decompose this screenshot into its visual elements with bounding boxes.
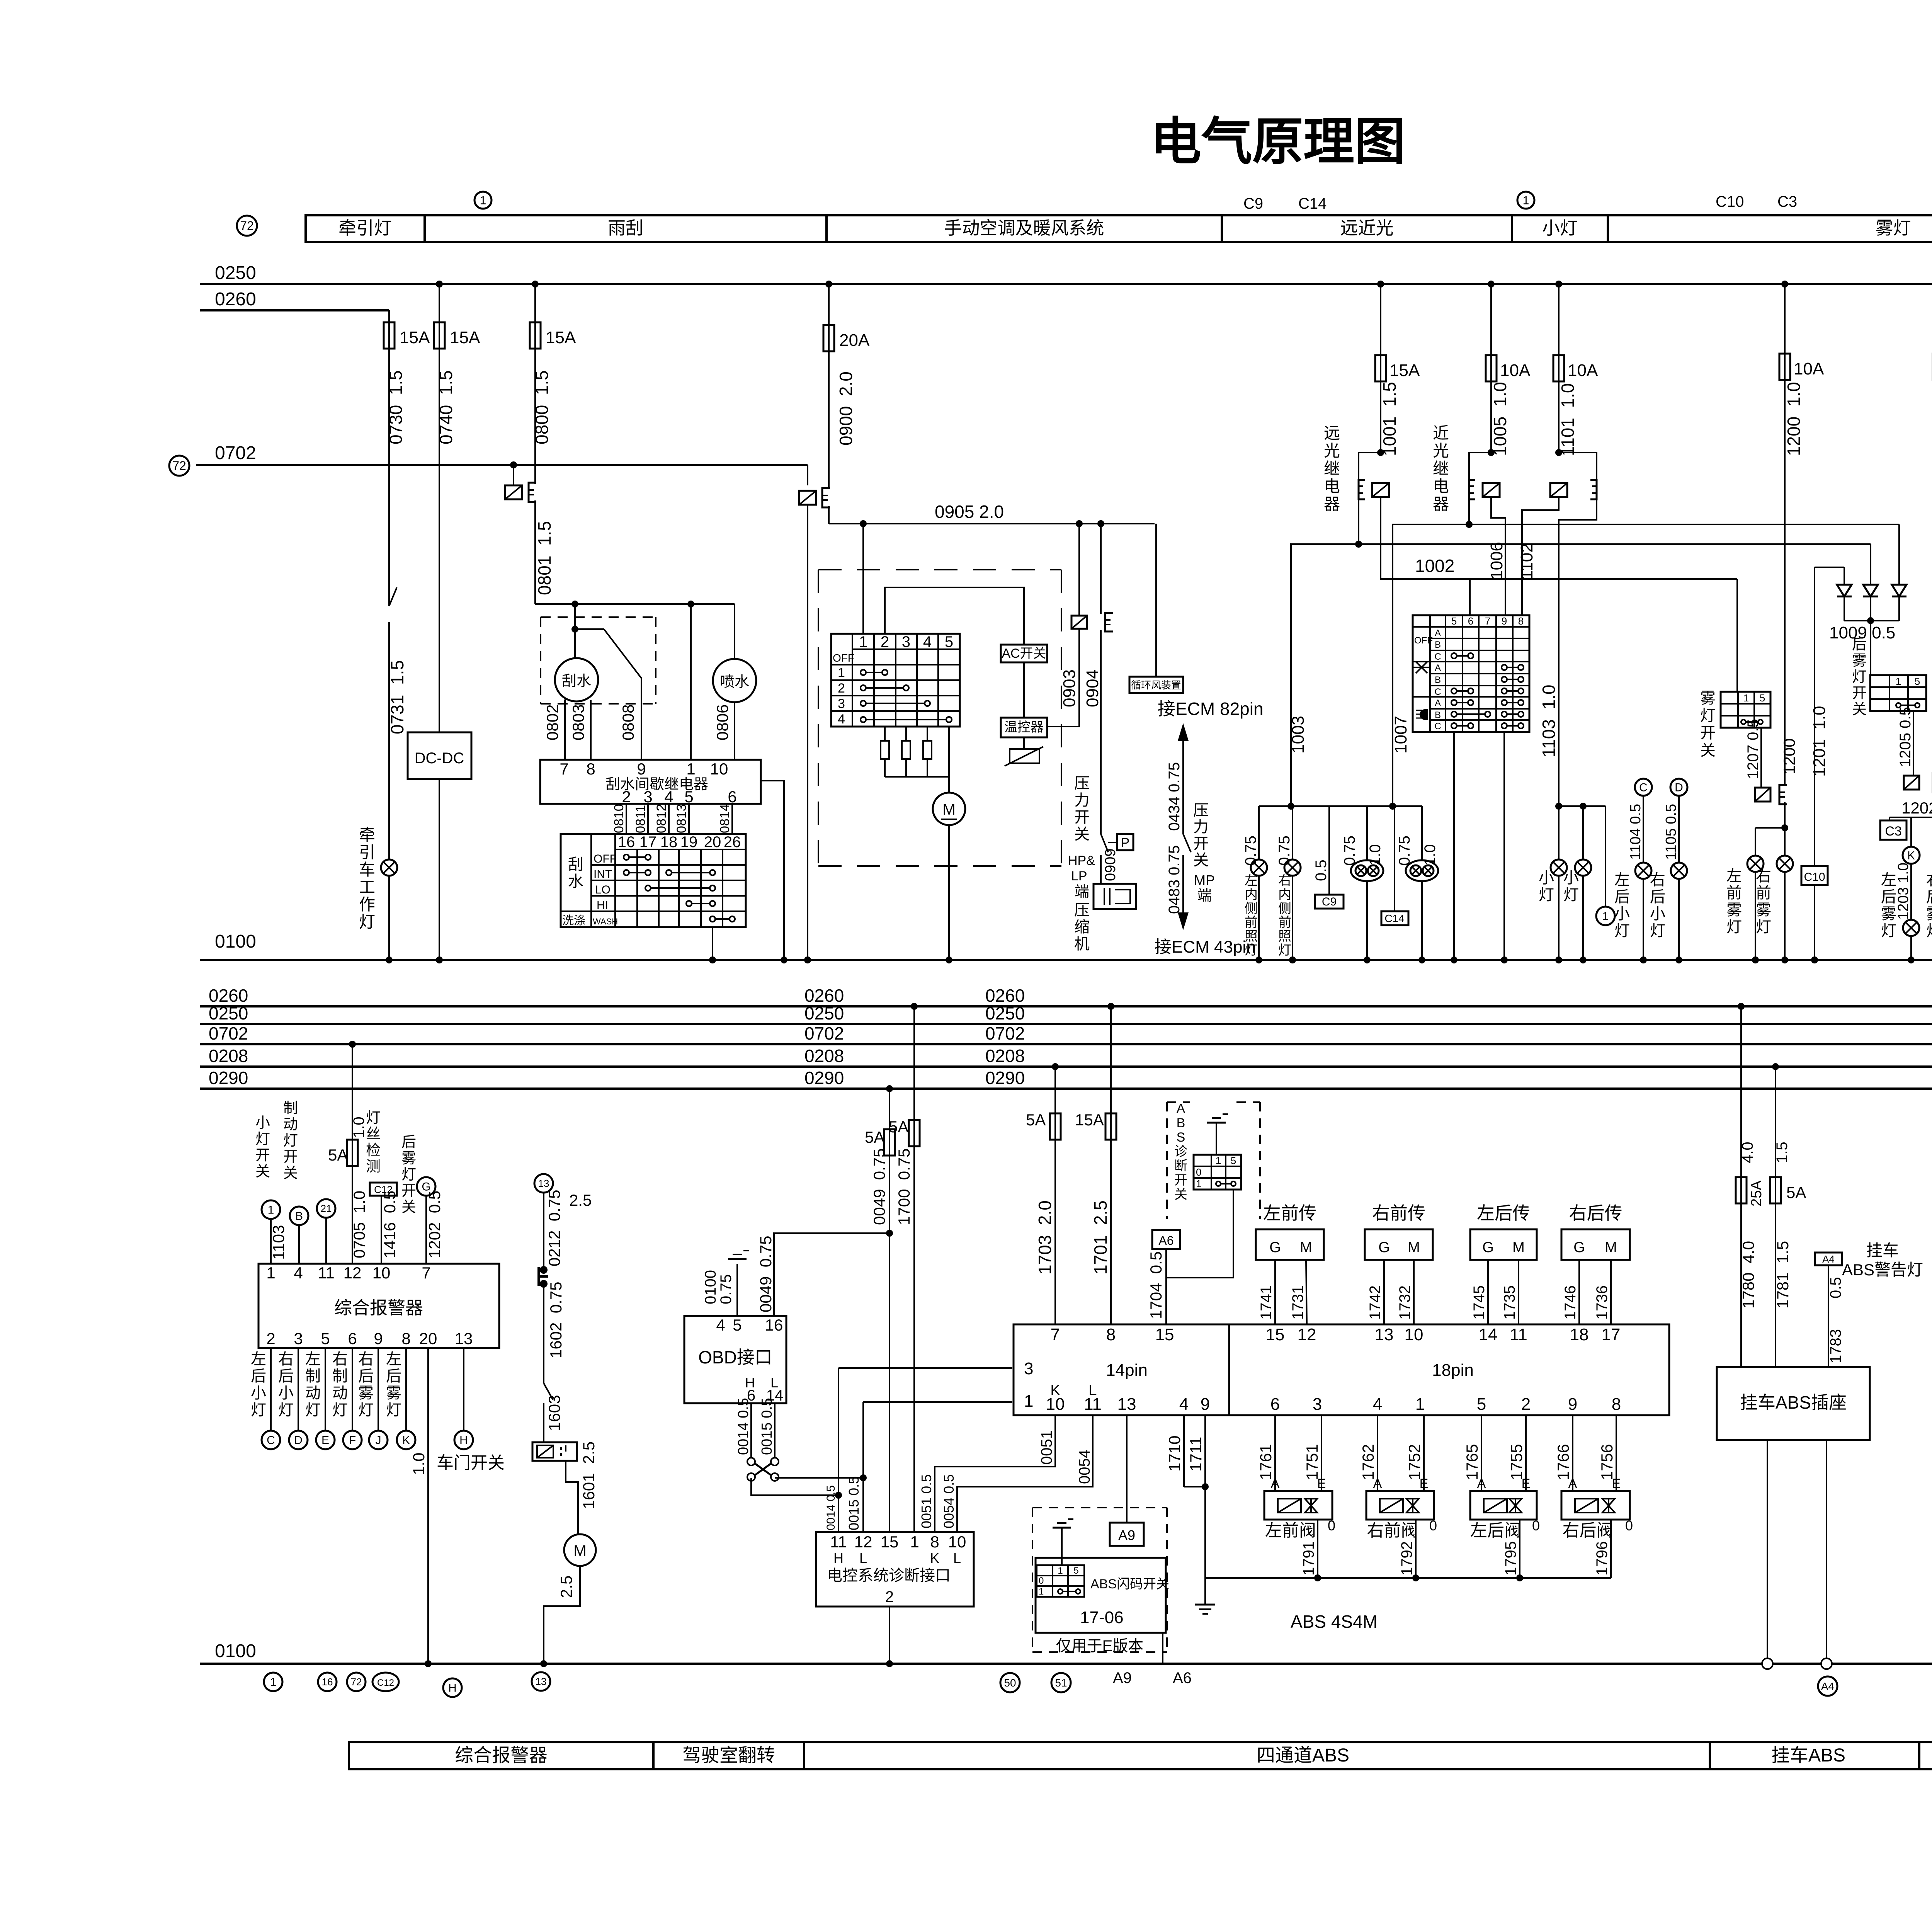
svg-text:1752: 1752	[1405, 1444, 1423, 1480]
svg-text:后雾灯开关: 后雾灯开关	[401, 1134, 416, 1215]
svg-text:C10: C10	[1716, 193, 1744, 210]
svg-text:1791: 1791	[1300, 1541, 1317, 1576]
svg-text:7: 7	[1051, 1325, 1060, 1344]
svg-text:11: 11	[1084, 1395, 1102, 1414]
svg-text:20: 20	[419, 1329, 437, 1348]
svg-text:20: 20	[704, 834, 721, 851]
svg-text:牵引灯: 牵引灯	[338, 218, 392, 238]
svg-text:C: C	[1639, 781, 1648, 794]
svg-text:左后小灯: 左后小灯	[1614, 871, 1630, 939]
svg-text:MP: MP	[1194, 872, 1215, 888]
svg-text:1704 0.5: 1704 0.5	[1147, 1251, 1165, 1319]
svg-text:13: 13	[1117, 1395, 1136, 1414]
svg-text:H: H	[459, 1434, 468, 1447]
svg-text:洗涤: 洗涤	[562, 914, 585, 927]
svg-text:1002: 1002	[1415, 556, 1454, 576]
svg-text:D: D	[1675, 781, 1683, 794]
svg-text:B: B	[1435, 675, 1441, 685]
svg-text:接ECM 43pin: 接ECM 43pin	[1155, 938, 1256, 956]
svg-text:1700 0.75: 1700 0.75	[895, 1148, 913, 1225]
svg-text:8: 8	[586, 760, 595, 778]
svg-text:0810: 0810	[612, 804, 626, 833]
svg-text:A4: A4	[1821, 1680, 1834, 1692]
svg-text:20A: 20A	[839, 331, 870, 350]
svg-text:A: A	[1435, 663, 1441, 673]
svg-text:1101 1.0: 1101 1.0	[1558, 383, 1578, 456]
svg-text:右后传: 右后传	[1569, 1203, 1622, 1223]
svg-text:OFF: OFF	[833, 652, 854, 664]
svg-text:C9: C9	[1322, 895, 1337, 908]
svg-text:0250: 0250	[804, 1003, 844, 1023]
svg-text:1602 0.75: 1602 0.75	[547, 1282, 565, 1358]
svg-text:M: M	[1605, 1239, 1617, 1256]
svg-text:3: 3	[1313, 1395, 1322, 1414]
svg-text:4: 4	[664, 788, 673, 806]
svg-text:1792: 1792	[1398, 1541, 1415, 1576]
svg-text:0208: 0208	[209, 1046, 248, 1066]
svg-text:1103: 1103	[269, 1225, 287, 1260]
svg-text:C: C	[267, 1434, 275, 1447]
svg-text:9: 9	[1201, 1395, 1210, 1414]
svg-text:四通道ABS: 四通道ABS	[1257, 1745, 1349, 1766]
svg-text:M: M	[942, 801, 955, 818]
svg-text:1: 1	[268, 1204, 274, 1217]
svg-text:16: 16	[765, 1316, 783, 1334]
svg-text:1: 1	[1743, 692, 1749, 704]
svg-text:3: 3	[1024, 1359, 1033, 1378]
svg-text:4: 4	[716, 1316, 725, 1334]
svg-text:19: 19	[680, 834, 698, 851]
svg-text:25A: 25A	[1748, 1180, 1765, 1207]
svg-text:6: 6	[1270, 1395, 1280, 1414]
svg-text:驾驶室翻转: 驾驶室翻转	[682, 1745, 775, 1766]
svg-text:E: E	[1317, 1476, 1326, 1491]
svg-text:端: 端	[1197, 888, 1212, 904]
svg-text:1001 1.5: 1001 1.5	[1379, 382, 1400, 456]
svg-text:小灯: 小灯	[1563, 870, 1579, 904]
svg-text:1416 0.5: 1416 0.5	[381, 1191, 399, 1258]
svg-text:72: 72	[351, 1676, 362, 1688]
svg-text:15: 15	[881, 1533, 899, 1551]
svg-text:手动空调及暖风系统: 手动空调及暖风系统	[944, 218, 1104, 238]
svg-text:5A: 5A	[1786, 1183, 1806, 1202]
svg-text:10A: 10A	[1794, 359, 1824, 378]
svg-text:11: 11	[318, 1264, 335, 1282]
svg-text:1: 1	[838, 665, 845, 680]
svg-text:AC开关: AC开关	[1002, 646, 1046, 661]
svg-text:3: 3	[294, 1329, 303, 1348]
svg-text:LP: LP	[1071, 869, 1087, 883]
svg-text:0.5: 0.5	[1827, 1277, 1844, 1299]
svg-text:8: 8	[1518, 615, 1524, 627]
svg-text:5: 5	[684, 788, 693, 806]
svg-text:0905 2.0: 0905 2.0	[935, 502, 1004, 522]
svg-text:OFF: OFF	[594, 853, 617, 865]
svg-text:1: 1	[1602, 910, 1609, 923]
svg-text:C: C	[1434, 652, 1441, 662]
svg-text:51: 51	[1055, 1677, 1067, 1689]
svg-text:2: 2	[881, 633, 889, 650]
svg-text:1: 1	[1216, 1155, 1221, 1166]
svg-text:A: A	[1435, 698, 1441, 708]
svg-text:0212 0.75: 0212 0.75	[545, 1190, 563, 1266]
svg-text:右内侧前照灯: 右内侧前照灯	[1278, 873, 1291, 958]
svg-text:18: 18	[1570, 1325, 1589, 1344]
svg-text:G: G	[1573, 1239, 1585, 1256]
svg-text:4: 4	[838, 712, 845, 727]
svg-text:0813: 0813	[674, 804, 689, 833]
svg-text:ABS警告灯: ABS警告灯	[1842, 1261, 1923, 1279]
svg-text:3: 3	[902, 633, 910, 650]
svg-text:1751: 1751	[1303, 1444, 1321, 1480]
svg-text:0803: 0803	[569, 705, 587, 740]
svg-text:1102: 1102	[1517, 543, 1536, 580]
svg-text:2: 2	[885, 1588, 894, 1605]
svg-text:1202 0.5: 1202 0.5	[425, 1191, 444, 1258]
svg-text:0100: 0100	[702, 1270, 719, 1304]
svg-text:6: 6	[728, 788, 736, 806]
svg-text:2: 2	[1521, 1395, 1531, 1414]
svg-text:0900 2.0: 0900 2.0	[836, 371, 856, 446]
svg-text:4: 4	[294, 1264, 303, 1282]
svg-text:0702: 0702	[215, 443, 256, 463]
svg-text:11: 11	[830, 1533, 847, 1551]
svg-text:13: 13	[1375, 1325, 1394, 1344]
svg-text:1796: 1796	[1594, 1541, 1611, 1576]
svg-text:0049 0.75: 0049 0.75	[870, 1148, 888, 1225]
svg-text:5: 5	[1760, 692, 1765, 704]
svg-text:1710: 1710	[1165, 1436, 1184, 1472]
svg-text:E: E	[1612, 1476, 1621, 1491]
svg-text:近光继电器: 近光继电器	[1433, 424, 1449, 513]
svg-text:左后雾灯: 左后雾灯	[386, 1351, 401, 1419]
svg-text:0483 0.75: 0483 0.75	[1166, 845, 1183, 914]
svg-text:1.0: 1.0	[350, 1116, 367, 1138]
svg-text:0.75: 0.75	[1396, 836, 1413, 866]
svg-text:温控器: 温控器	[1004, 720, 1044, 735]
svg-text:L: L	[953, 1550, 961, 1566]
svg-text:A: A	[1373, 1476, 1382, 1491]
svg-text:左前阀: 左前阀	[1265, 1521, 1316, 1540]
svg-text:8: 8	[930, 1533, 939, 1551]
svg-text:J: J	[376, 1434, 381, 1447]
svg-text:50: 50	[1004, 1677, 1016, 1689]
svg-text:5A: 5A	[889, 1118, 908, 1136]
svg-text:0705 1.0: 0705 1.0	[350, 1191, 368, 1258]
svg-text:5: 5	[1915, 676, 1920, 687]
svg-text:左前雾灯: 左前雾灯	[1726, 868, 1742, 936]
svg-text:0014 0.5: 0014 0.5	[735, 1398, 752, 1455]
svg-text:1755: 1755	[1507, 1444, 1526, 1480]
svg-text:1703 2.0: 1703 2.0	[1035, 1200, 1055, 1275]
svg-text:1.0: 1.0	[1367, 844, 1384, 866]
svg-text:5: 5	[1477, 1395, 1486, 1414]
svg-text:15A: 15A	[450, 328, 480, 347]
svg-text:0802: 0802	[543, 705, 561, 740]
svg-text:8: 8	[1612, 1395, 1621, 1414]
svg-text:3: 3	[643, 788, 652, 806]
svg-text:0702: 0702	[804, 1023, 844, 1043]
svg-text:0806: 0806	[713, 705, 731, 740]
svg-text:左后小灯: 左后小灯	[251, 1351, 266, 1419]
svg-text:综合报警器: 综合报警器	[455, 1745, 548, 1766]
svg-text:循环风装置: 循环风装置	[1131, 679, 1181, 691]
svg-text:1.0: 1.0	[410, 1453, 428, 1475]
svg-text:OFF: OFF	[1414, 635, 1433, 646]
svg-text:M: M	[1512, 1239, 1525, 1256]
svg-text:K: K	[402, 1434, 410, 1447]
svg-text:72: 72	[172, 459, 186, 473]
svg-text:0290: 0290	[804, 1068, 844, 1088]
svg-text:21: 21	[321, 1203, 332, 1214]
svg-text:1006: 1006	[1487, 542, 1506, 580]
svg-text:M: M	[1300, 1239, 1312, 1256]
svg-text:C14: C14	[1384, 912, 1404, 924]
svg-text:1: 1	[480, 194, 486, 207]
svg-text:2: 2	[622, 788, 631, 806]
svg-text:1: 1	[686, 760, 695, 778]
svg-text:0015 0.5: 0015 0.5	[759, 1398, 775, 1455]
svg-text:1.5: 1.5	[1774, 1142, 1791, 1163]
svg-text:2.5: 2.5	[557, 1576, 575, 1598]
svg-text:1795: 1795	[1502, 1541, 1519, 1576]
svg-text:0250: 0250	[215, 263, 256, 283]
svg-text:INT: INT	[594, 868, 612, 881]
svg-text:1746: 1746	[1562, 1285, 1579, 1320]
svg-text:8: 8	[401, 1329, 410, 1348]
svg-text:0702: 0702	[209, 1023, 248, 1043]
svg-text:M: M	[1408, 1239, 1420, 1256]
svg-text:1: 1	[859, 633, 867, 650]
svg-text:13: 13	[536, 1676, 547, 1687]
svg-text:4: 4	[1179, 1395, 1189, 1414]
svg-text:右后雾灯: 右后雾灯	[1926, 871, 1932, 939]
svg-text:5A: 5A	[328, 1146, 348, 1164]
svg-text:C3: C3	[1885, 824, 1901, 839]
svg-text:13: 13	[455, 1329, 473, 1348]
svg-text:0.75: 0.75	[1242, 836, 1259, 866]
svg-text:1: 1	[270, 1676, 277, 1689]
svg-text:A: A	[1271, 1476, 1280, 1491]
svg-text:0: 0	[1328, 1518, 1335, 1533]
svg-text:F: F	[349, 1434, 356, 1447]
svg-text:0208: 0208	[804, 1046, 844, 1066]
svg-text:WASH: WASH	[593, 917, 618, 926]
svg-text:0015 0.5: 0015 0.5	[846, 1476, 862, 1530]
svg-text:6: 6	[348, 1329, 357, 1348]
svg-text:仅用于E版本: 仅用于E版本	[1056, 1637, 1144, 1654]
svg-text:14pin: 14pin	[1106, 1361, 1148, 1380]
svg-text:车门开关: 车门开关	[437, 1453, 505, 1472]
svg-text:17-06: 17-06	[1080, 1608, 1124, 1627]
svg-text:0812: 0812	[654, 804, 669, 833]
svg-text:K: K	[930, 1550, 939, 1566]
svg-text:10: 10	[1405, 1325, 1423, 1344]
svg-text:挂车: 挂车	[1866, 1241, 1899, 1259]
svg-text:10: 10	[710, 760, 728, 778]
svg-text:1766: 1766	[1554, 1444, 1572, 1480]
svg-text:0814: 0814	[718, 804, 732, 833]
svg-text:8: 8	[1106, 1325, 1116, 1344]
svg-text:1731: 1731	[1289, 1285, 1306, 1320]
svg-text:10A: 10A	[1568, 361, 1598, 380]
svg-text:雾灯开关: 雾灯开关	[1700, 690, 1716, 759]
svg-text:牵引车工作灯: 牵引车工作灯	[359, 826, 375, 931]
svg-text:0: 0	[1196, 1166, 1201, 1178]
svg-text:右前传: 右前传	[1372, 1203, 1425, 1223]
svg-text:17: 17	[639, 834, 657, 851]
svg-text:6: 6	[1468, 615, 1473, 627]
svg-text:1003: 1003	[1289, 716, 1308, 754]
svg-text:0: 0	[1429, 1518, 1437, 1533]
svg-text:0903: 0903	[1060, 669, 1079, 707]
svg-text:2: 2	[266, 1329, 275, 1348]
svg-text:雾灯: 雾灯	[1876, 218, 1911, 238]
svg-text:右后阀: 右后阀	[1563, 1521, 1614, 1540]
svg-text:1761: 1761	[1257, 1444, 1275, 1480]
svg-text:0731 1.5: 0731 1.5	[387, 660, 407, 734]
svg-text:1711: 1711	[1187, 1437, 1205, 1472]
svg-text:0909: 0909	[1102, 848, 1119, 881]
svg-text:1007: 1007	[1391, 716, 1410, 754]
svg-text:0260: 0260	[804, 985, 844, 1006]
svg-text:左后阀: 左后阀	[1470, 1521, 1521, 1540]
svg-text:A9: A9	[1113, 1670, 1132, 1687]
svg-text:1: 1	[266, 1264, 275, 1282]
svg-text:0260: 0260	[209, 985, 248, 1006]
svg-text:B: B	[295, 1210, 303, 1223]
svg-text:右后小灯: 右后小灯	[278, 1351, 294, 1419]
svg-text:4: 4	[1373, 1395, 1382, 1414]
svg-text:E: E	[1522, 1476, 1531, 1491]
svg-text:4.0: 4.0	[1739, 1142, 1756, 1163]
svg-text:5: 5	[733, 1316, 742, 1334]
svg-text:后雾灯开关: 后雾灯开关	[1852, 636, 1867, 718]
svg-text:1701 2.5: 1701 2.5	[1090, 1200, 1111, 1275]
svg-text:ABS闪码开关: ABS闪码开关	[1090, 1577, 1169, 1591]
svg-text:0.75: 0.75	[1276, 836, 1293, 866]
svg-text:0: 0	[1532, 1518, 1540, 1533]
svg-text:1: 1	[1415, 1395, 1425, 1414]
svg-text:ABS 4S4M: ABS 4S4M	[1291, 1612, 1378, 1632]
svg-text:1762: 1762	[1359, 1444, 1377, 1480]
svg-text:DC-DC: DC-DC	[415, 750, 464, 767]
svg-text:1: 1	[1024, 1392, 1033, 1411]
svg-text:右后小灯: 右后小灯	[1650, 871, 1665, 939]
svg-text:9: 9	[1568, 1395, 1577, 1414]
svg-text:1: 1	[1523, 194, 1529, 207]
svg-text:0808: 0808	[619, 705, 637, 740]
svg-text:11: 11	[1510, 1325, 1527, 1344]
svg-text:17: 17	[1602, 1325, 1621, 1344]
svg-text:小灯: 小灯	[1542, 218, 1578, 238]
svg-text:15A: 15A	[546, 328, 576, 347]
svg-text:电控系统诊断接口: 电控系统诊断接口	[827, 1567, 951, 1584]
svg-text:G: G	[1378, 1239, 1390, 1256]
svg-text:5: 5	[1073, 1566, 1078, 1576]
svg-text:喷水: 喷水	[720, 674, 749, 690]
svg-text:1: 1	[1896, 676, 1901, 687]
svg-text:1201 1.0: 1201 1.0	[1810, 706, 1829, 777]
svg-text:C9: C9	[1243, 195, 1263, 212]
svg-text:A6: A6	[1173, 1670, 1192, 1687]
svg-text:5: 5	[945, 633, 953, 650]
svg-text:G: G	[1269, 1239, 1281, 1256]
svg-text:1780 4.0: 1780 4.0	[1739, 1241, 1757, 1309]
svg-text:3: 3	[838, 696, 845, 711]
svg-text:0811: 0811	[633, 805, 648, 833]
svg-text:9: 9	[637, 760, 646, 778]
svg-text:0.75: 0.75	[718, 1274, 735, 1304]
svg-text:7: 7	[1485, 615, 1490, 627]
svg-text:K: K	[1907, 849, 1915, 862]
svg-text:压力开关: 压力开关	[1193, 802, 1209, 869]
svg-text:12: 12	[1298, 1325, 1316, 1344]
svg-text:0054: 0054	[1076, 1450, 1093, 1484]
svg-text:HI: HI	[597, 899, 608, 912]
svg-text:9: 9	[1502, 615, 1507, 627]
svg-text:0434 0.75: 0434 0.75	[1166, 762, 1183, 831]
svg-text:1005 1.0: 1005 1.0	[1490, 382, 1510, 456]
svg-text:G: G	[1482, 1239, 1494, 1256]
svg-text:A6: A6	[1158, 1234, 1173, 1247]
svg-text:0260: 0260	[985, 985, 1025, 1006]
svg-text:1: 1	[1058, 1566, 1063, 1576]
svg-text:远光继电器: 远光继电器	[1324, 424, 1340, 513]
svg-text:小灯开关: 小灯开关	[255, 1115, 270, 1180]
svg-text:E: E	[1420, 1476, 1429, 1491]
svg-text:B: B	[1435, 710, 1441, 720]
svg-text:远近光: 远近光	[1340, 218, 1394, 238]
svg-text:0290: 0290	[209, 1068, 248, 1088]
svg-text:右制动灯: 右制动灯	[332, 1351, 348, 1419]
svg-text:1742: 1742	[1367, 1285, 1384, 1320]
svg-text:1783: 1783	[1827, 1329, 1844, 1363]
svg-text:A4: A4	[1822, 1253, 1835, 1265]
svg-text:13: 13	[538, 1178, 549, 1189]
svg-text:1781 1.5: 1781 1.5	[1774, 1241, 1792, 1309]
svg-text:压缩机: 压缩机	[1074, 902, 1090, 953]
svg-text:1104 0.5: 1104 0.5	[1628, 804, 1644, 860]
svg-text:刮水: 刮水	[562, 673, 591, 689]
svg-text:12: 12	[854, 1533, 872, 1551]
svg-text:16: 16	[618, 834, 635, 851]
svg-text:C3: C3	[1777, 193, 1797, 210]
svg-text:C14: C14	[1298, 195, 1327, 212]
svg-text:1202 0.5: 1202 0.5	[1901, 799, 1932, 817]
svg-text:15A: 15A	[1075, 1111, 1104, 1129]
svg-text:0100: 0100	[215, 931, 256, 952]
svg-text:1601 2.5: 1601 2.5	[580, 1441, 598, 1509]
svg-text:9: 9	[374, 1329, 383, 1348]
svg-text:右前阀: 右前阀	[1367, 1521, 1418, 1540]
svg-text:15A: 15A	[400, 328, 430, 347]
svg-text:2.5: 2.5	[569, 1191, 592, 1209]
svg-text:1.0: 1.0	[1422, 844, 1439, 866]
svg-text:5: 5	[1231, 1155, 1236, 1166]
svg-text:72: 72	[240, 219, 254, 233]
svg-text:5: 5	[321, 1329, 330, 1348]
svg-text:7: 7	[560, 760, 568, 778]
svg-text:1207 0.5: 1207 0.5	[1745, 719, 1762, 779]
svg-text:1103 1.0: 1103 1.0	[1539, 685, 1559, 757]
svg-text:12: 12	[344, 1264, 362, 1282]
svg-text:1765: 1765	[1463, 1444, 1481, 1480]
svg-text:左后传: 左后传	[1477, 1203, 1530, 1223]
svg-text:H: H	[833, 1550, 844, 1566]
svg-text:0702: 0702	[985, 1023, 1025, 1043]
svg-text:0: 0	[1039, 1576, 1044, 1586]
